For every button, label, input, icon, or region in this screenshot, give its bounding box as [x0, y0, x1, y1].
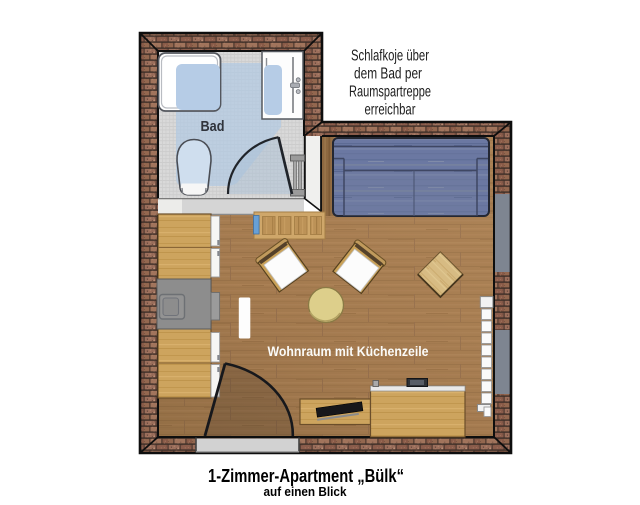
svg-text:Wohnraum mit Küchenzeile: Wohnraum mit Küchenzeile: [268, 344, 429, 359]
svg-text:erreichbar: erreichbar: [365, 102, 416, 119]
svg-text:1-Zimmer-Apartment „Bülk“: 1-Zimmer-Apartment „Bülk“: [208, 466, 404, 486]
svg-text:Raumspartreppe: Raumspartreppe: [349, 84, 431, 101]
svg-text:dem Bad per: dem Bad per: [354, 66, 422, 83]
svg-text:Schlafkoje über: Schlafkoje über: [351, 48, 429, 65]
svg-text:auf einen Blick: auf einen Blick: [264, 485, 347, 499]
svg-text:Bad: Bad: [201, 119, 225, 135]
